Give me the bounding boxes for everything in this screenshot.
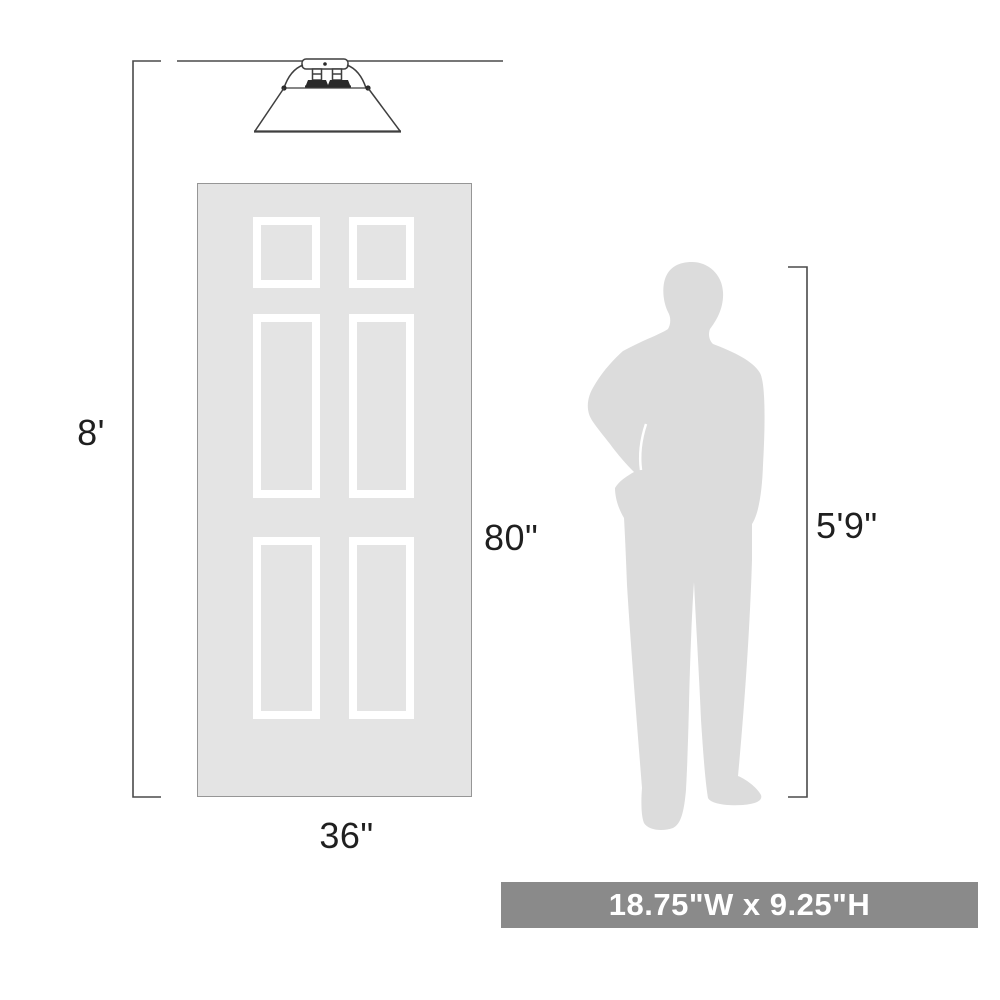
fixture-size-text: 18.75"W x 9.25"H [609,887,870,923]
canopy-screw [323,62,327,66]
shade-side-right [368,88,400,131]
product-size-diagram: 8' 80" 36" 5'9" 18.75"W x 9.25"H [0,0,1000,1000]
person-height-bracket [788,267,807,797]
door-panel-top-right [349,217,414,288]
door-panel-middle-right [349,314,414,498]
ceiling-height-bracket [133,61,161,797]
door [197,183,472,797]
fixture-size-banner: 18.75"W x 9.25"H [501,882,978,928]
door-panel-middle-left [253,314,320,498]
light-socket-left [305,69,329,88]
diagram-linework [0,0,1000,1000]
flush-mount-light [254,59,401,132]
door-panel-top-left [253,217,320,288]
shade-side-left [255,88,284,131]
ceiling-height-label: 8' [45,414,105,452]
door-panel-bottom-right [349,537,414,719]
shade-arm-left [284,65,303,88]
door-height-label: 80" [484,519,538,557]
door-panel-bottom-left [253,537,320,719]
person-height-label: 5'9" [816,507,878,545]
door-width-label: 36" [299,817,394,855]
light-socket-right [327,69,351,88]
shade-arm-right [347,65,366,88]
person-silhouette [588,262,765,830]
